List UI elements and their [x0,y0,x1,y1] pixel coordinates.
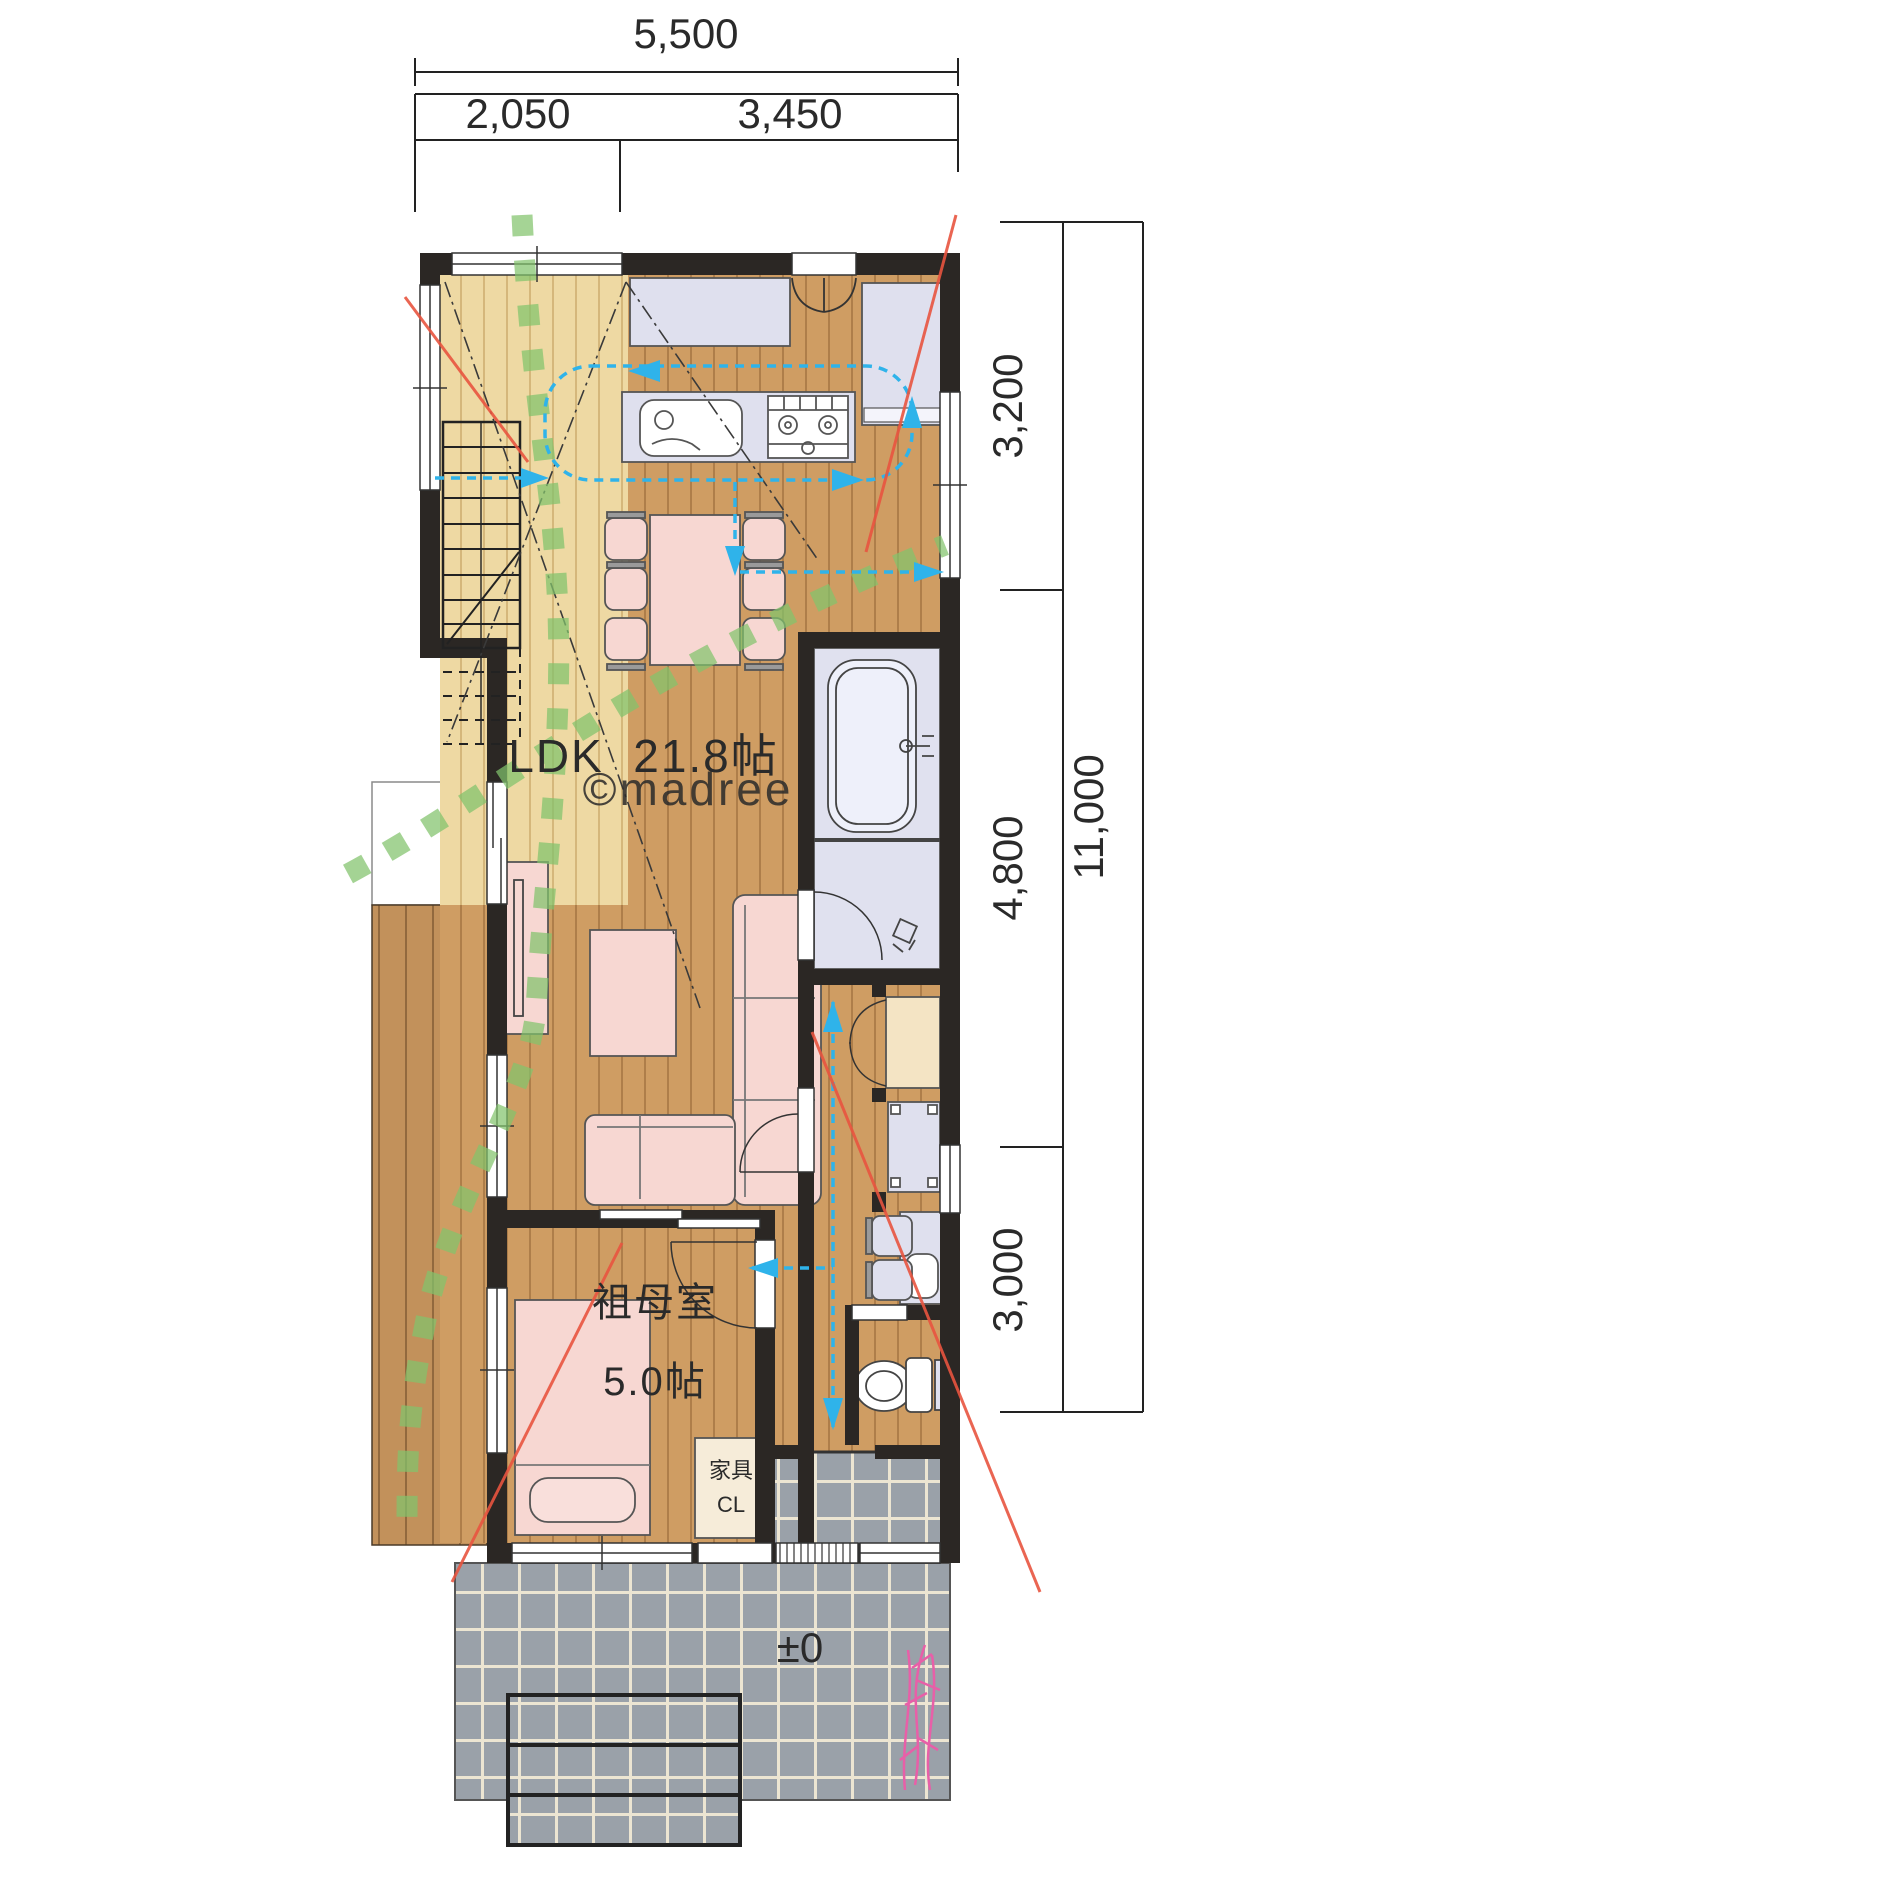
dim-top-total: 5,500 [633,10,738,57]
dim-top-right: 3,450 [737,90,842,137]
dining-table [650,515,740,665]
grandmother-size-label: 5.0帖 [603,1360,707,1404]
sliding-door-porch [487,782,507,904]
porch-steps [508,1695,740,1845]
furniture-closet-label-2: CL [717,1492,745,1517]
living-door-gap [798,1088,814,1172]
dim-right-middle: 4,800 [984,815,1031,920]
watermark: ©madree [583,763,794,815]
toilet-icon [855,1358,944,1412]
stove-icon [768,396,848,458]
ground-level-label: ±0 [777,1624,823,1671]
window-bottom-small [698,1543,772,1563]
refrigerator-cabinet [862,283,942,425]
floor-plan: LDK 21.8帖 祖母室 5.0帖 家具 CL ±0 ©madree 5,50… [0,0,1887,1887]
window-right-corridor [940,1145,960,1213]
furniture-closet-label-1: 家具 [709,1458,753,1483]
washroom-door-gap [798,890,814,960]
dining-chairs-left [605,512,647,670]
coffee-table [590,930,676,1056]
dining-set [605,512,785,670]
dim-top-left: 2,050 [465,90,570,137]
pillow [530,1478,635,1522]
bathroom [814,648,940,969]
kitchen-cabinet [630,278,790,346]
kitchen-island [622,392,855,462]
grandmother-label: 祖母室 [592,1281,718,1325]
grandmother-door-gap [755,1240,775,1328]
dim-right-bottom: 3,000 [984,1227,1031,1332]
window-bottom-entrance [860,1543,940,1563]
floor-plan-page: LDK 21.8帖 祖母室 5.0帖 家具 CL ±0 ©madree 5,50… [0,0,1887,1887]
dining-chairs-right [743,512,785,670]
dim-right-total: 11,000 [1065,754,1112,879]
washing-machine-icon [888,1102,940,1192]
dim-right-top: 3,200 [984,353,1031,458]
toilet-door-gap [852,1305,907,1320]
back-door-gap [792,253,856,275]
entrance-door [776,1543,858,1563]
